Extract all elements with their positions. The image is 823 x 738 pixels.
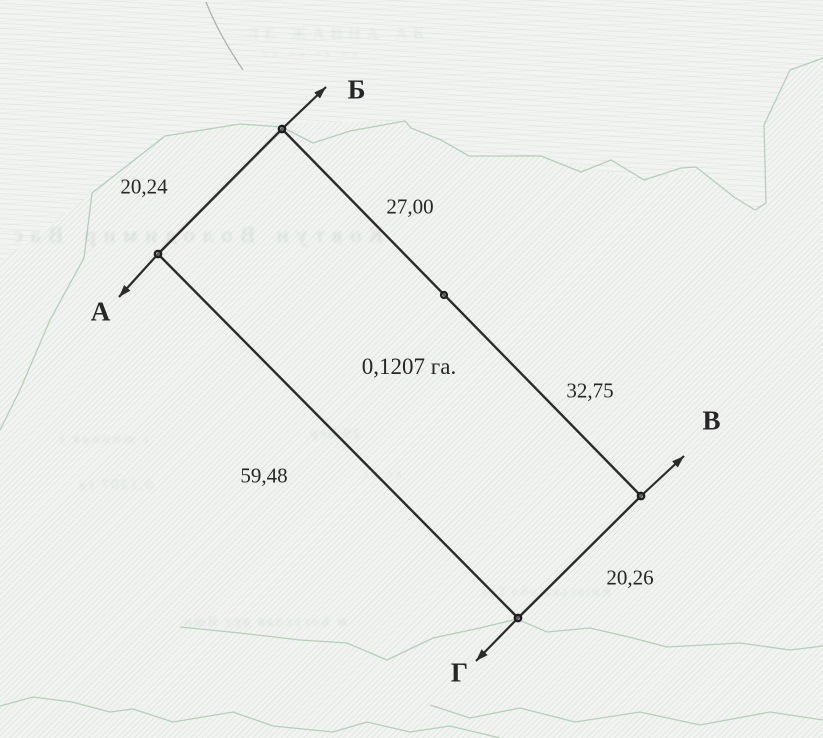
boundary-line — [158, 129, 282, 254]
boundary-line — [158, 254, 518, 618]
boundary-line — [282, 129, 641, 496]
distance-label-bv-upper: 27,00 — [386, 195, 433, 220]
distance-label-gv: 20,26 — [606, 566, 653, 591]
vertex-label-v: В — [702, 406, 721, 437]
survey-point — [515, 615, 521, 621]
contour-line — [430, 705, 823, 725]
vertex-label-a: А — [91, 297, 112, 328]
contour-line — [180, 619, 823, 660]
contour-line — [0, 697, 500, 738]
vertex-label-b: Б — [348, 75, 367, 106]
survey-point-intermediate — [441, 292, 447, 298]
scanned-survey-page: А Б В Г 20,24 27,00 32,75 59,48 20,26 0,… — [0, 0, 823, 738]
area-label: 0,1207 га. — [362, 354, 456, 380]
vertex-label-g: Г — [451, 658, 469, 689]
survey-point — [279, 126, 285, 132]
boundary-line — [518, 496, 641, 618]
paper-crease — [206, 2, 243, 70]
survey-point — [638, 493, 644, 499]
distance-label-ag: 59,48 — [240, 464, 287, 489]
distance-label-bv-lower: 32,75 — [566, 379, 613, 404]
survey-point — [155, 251, 161, 257]
distance-label-ab: 20,24 — [120, 175, 167, 200]
